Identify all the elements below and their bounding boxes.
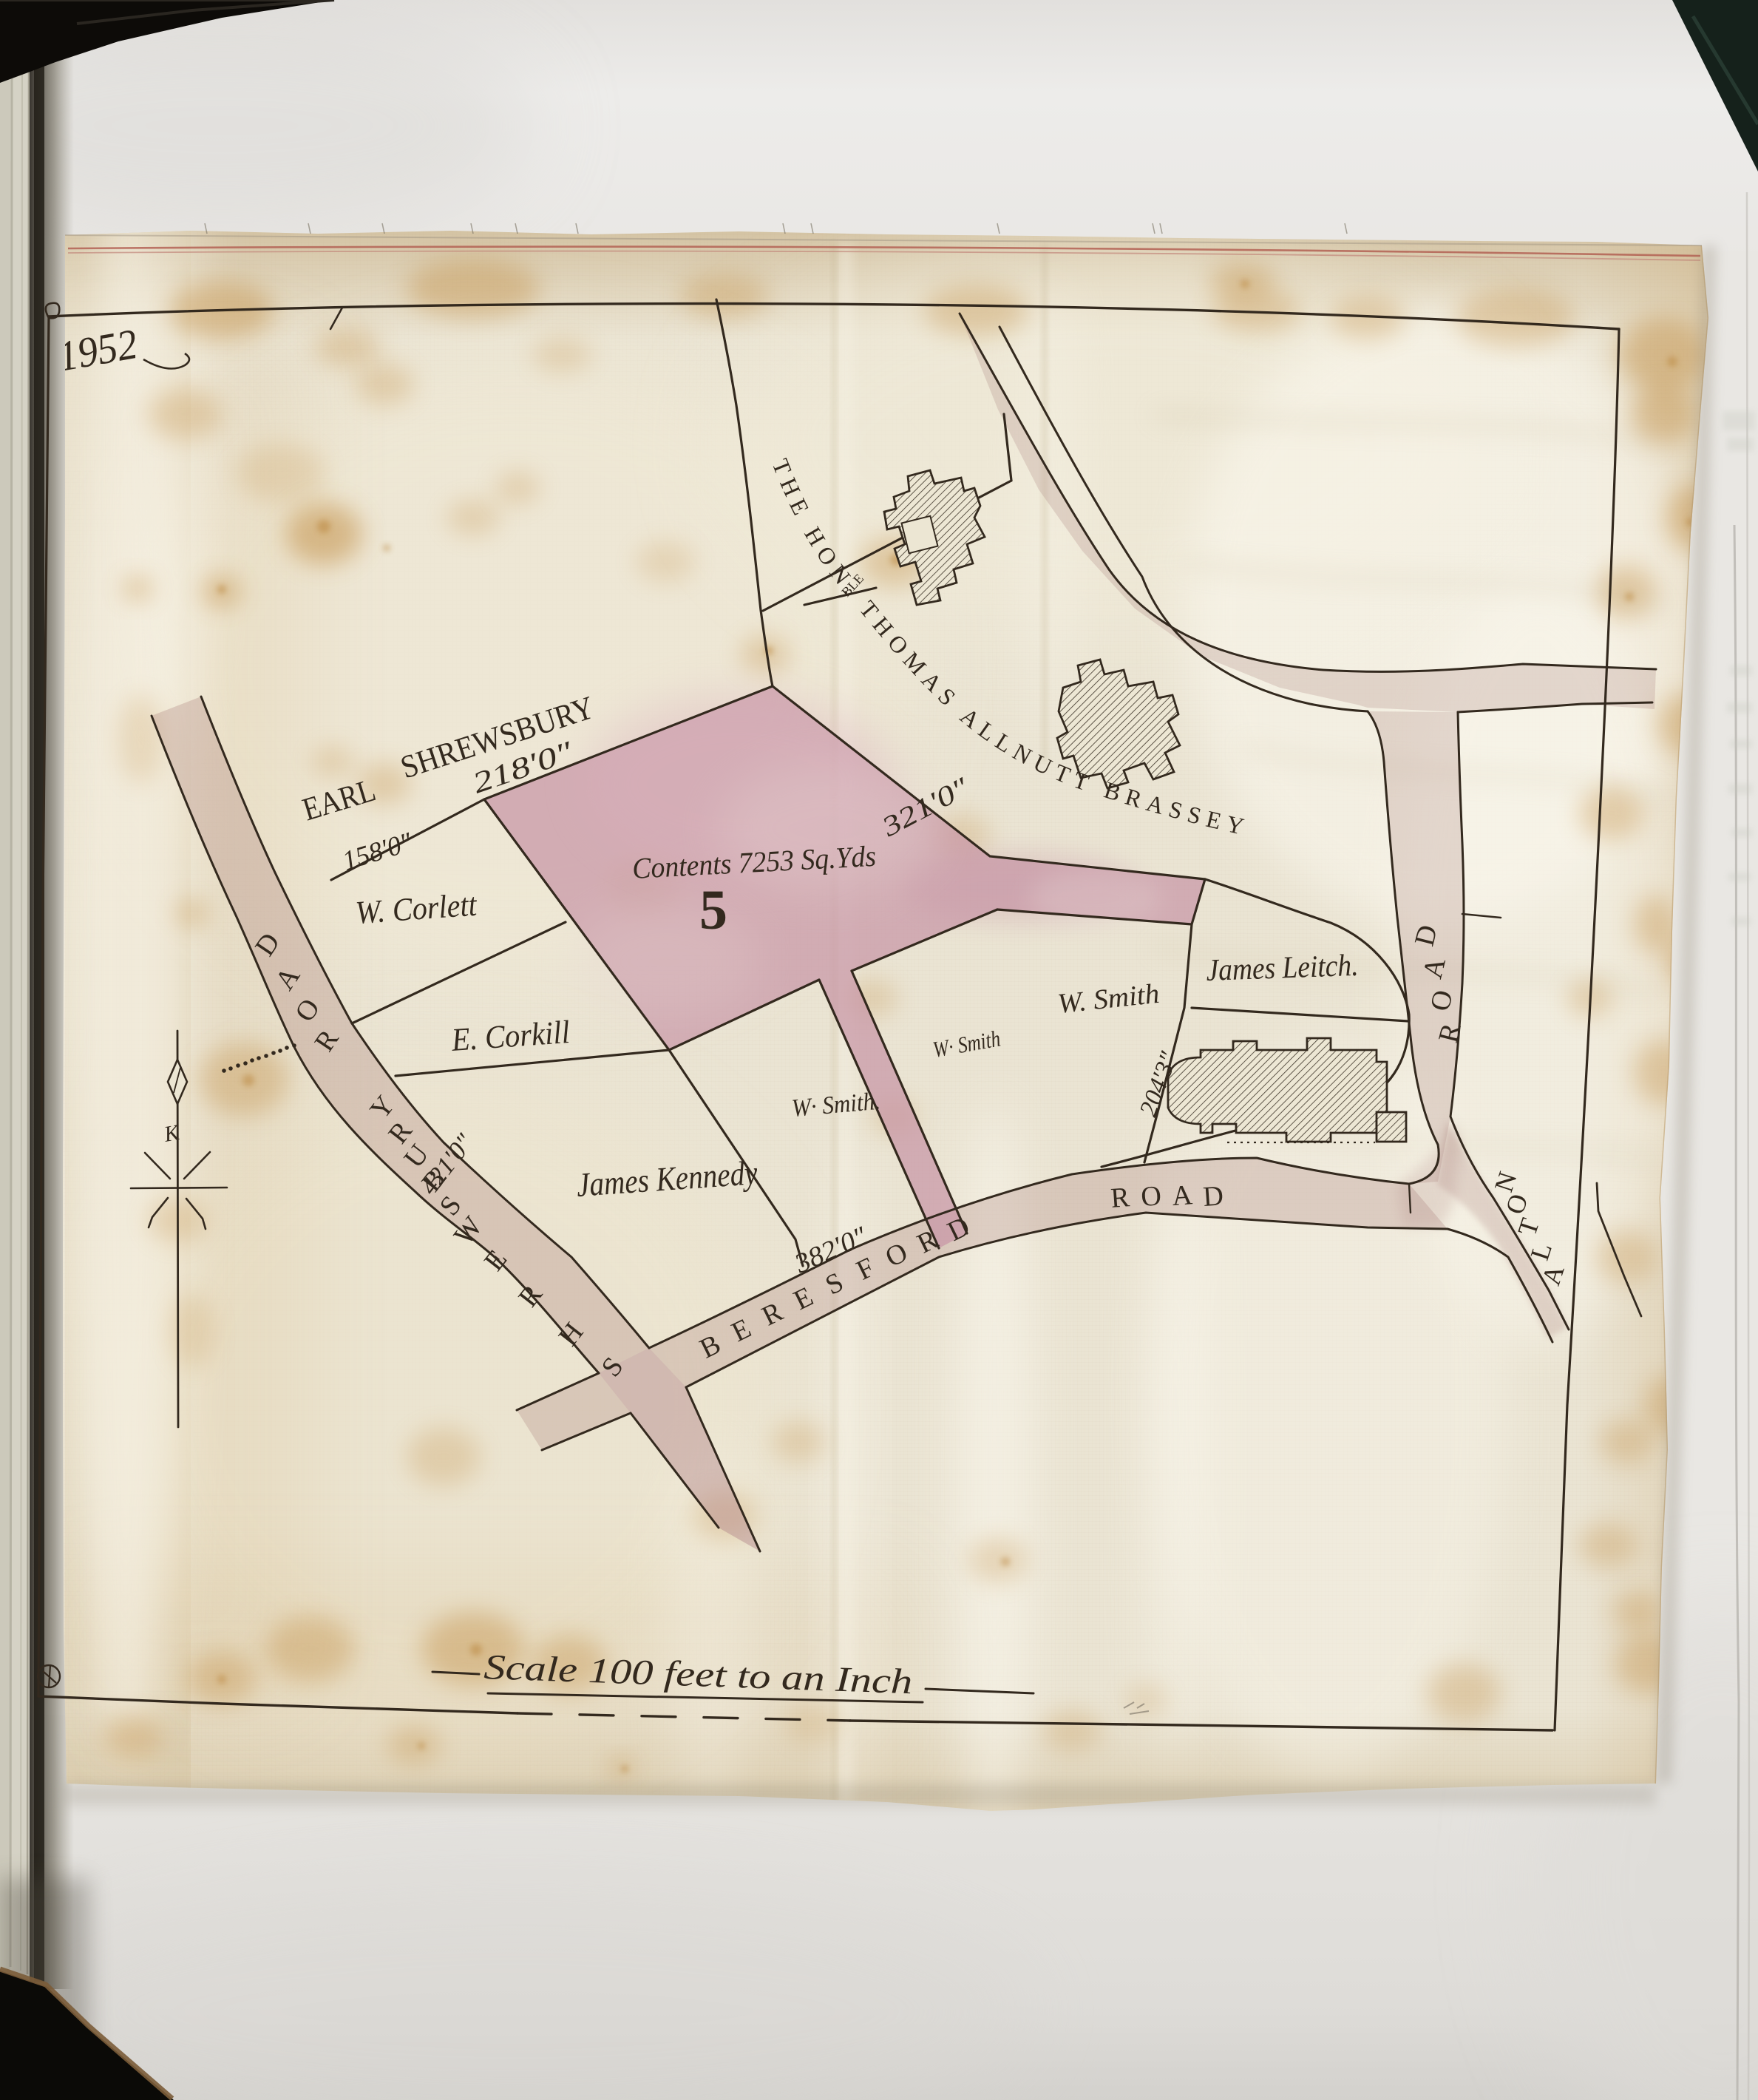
- svg-text:James Leitch.: James Leitch.: [1206, 949, 1359, 988]
- svg-text:5: 5: [699, 879, 727, 941]
- svg-text:D: D: [1202, 1180, 1224, 1213]
- svg-text:A: A: [1171, 1179, 1194, 1212]
- svg-text:O: O: [1140, 1180, 1162, 1213]
- svg-text:R: R: [1110, 1182, 1131, 1214]
